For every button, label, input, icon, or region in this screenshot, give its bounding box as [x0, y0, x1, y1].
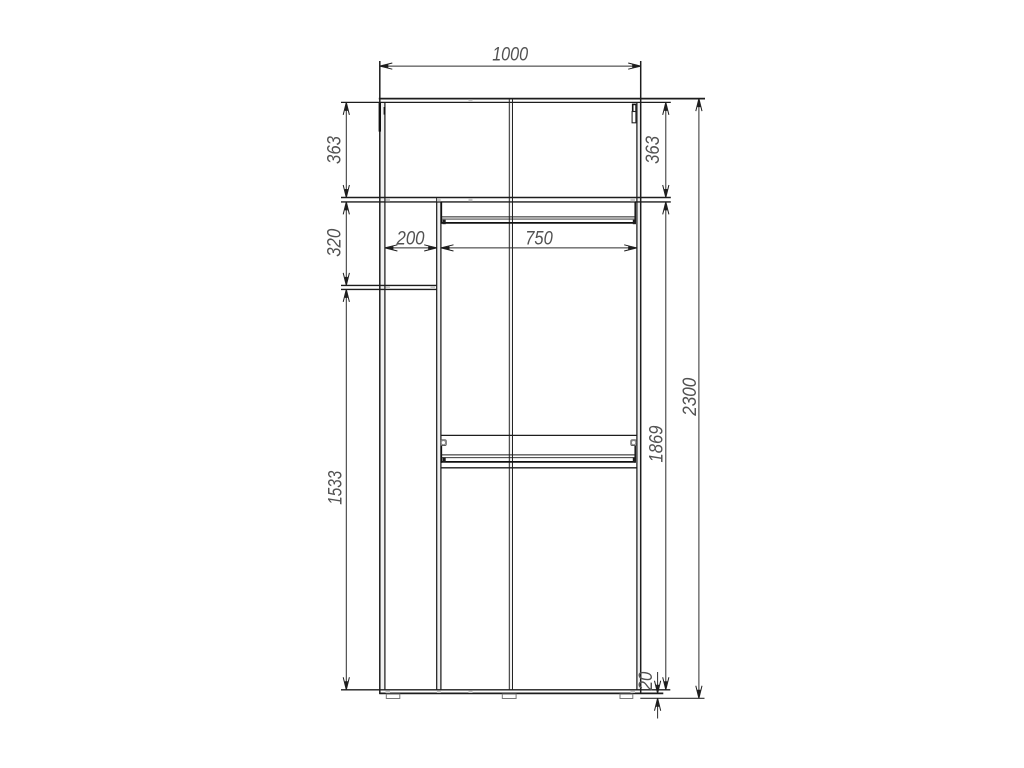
svg-text:363: 363 — [325, 136, 346, 164]
svg-text:1533: 1533 — [326, 470, 347, 504]
svg-text:1000: 1000 — [492, 45, 528, 66]
svg-text:200: 200 — [396, 229, 425, 250]
svg-text:320: 320 — [325, 228, 346, 256]
svg-text:750: 750 — [525, 229, 553, 250]
svg-text:20: 20 — [636, 671, 657, 691]
svg-text:2300: 2300 — [680, 377, 701, 416]
svg-text:1869: 1869 — [647, 425, 668, 462]
svg-text:363: 363 — [643, 136, 664, 164]
